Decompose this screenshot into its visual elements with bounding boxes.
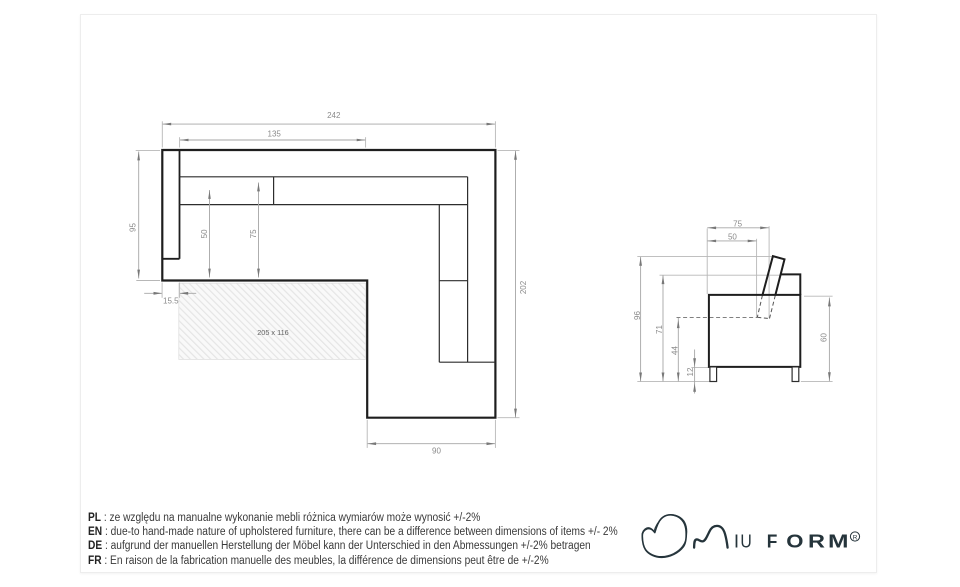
svg-text:202: 202 (519, 280, 528, 294)
svg-text:60: 60 (819, 333, 828, 342)
svg-text:I: I (734, 531, 739, 552)
svg-text:205 x 116: 205 x 116 (257, 328, 289, 337)
svg-text:R: R (808, 531, 826, 552)
svg-text:50: 50 (200, 229, 209, 238)
svg-text:95: 95 (128, 223, 137, 232)
svg-text:75: 75 (249, 229, 258, 238)
svg-text:50: 50 (728, 232, 737, 241)
svg-text:242: 242 (327, 111, 341, 120)
svg-text:96: 96 (633, 311, 642, 320)
svg-text:12: 12 (686, 367, 695, 376)
svg-text:75: 75 (733, 219, 742, 228)
svg-text:71: 71 (655, 325, 664, 334)
svg-text:15.5: 15.5 (163, 297, 179, 306)
svg-text:135: 135 (268, 130, 282, 139)
svg-text:90: 90 (432, 447, 441, 456)
svg-text:O: O (786, 531, 803, 552)
svg-text:M: M (828, 531, 849, 552)
svg-text:R: R (853, 534, 858, 541)
svg-text:U: U (740, 531, 751, 552)
svg-text:44: 44 (671, 346, 680, 355)
svg-text:F: F (767, 531, 778, 552)
